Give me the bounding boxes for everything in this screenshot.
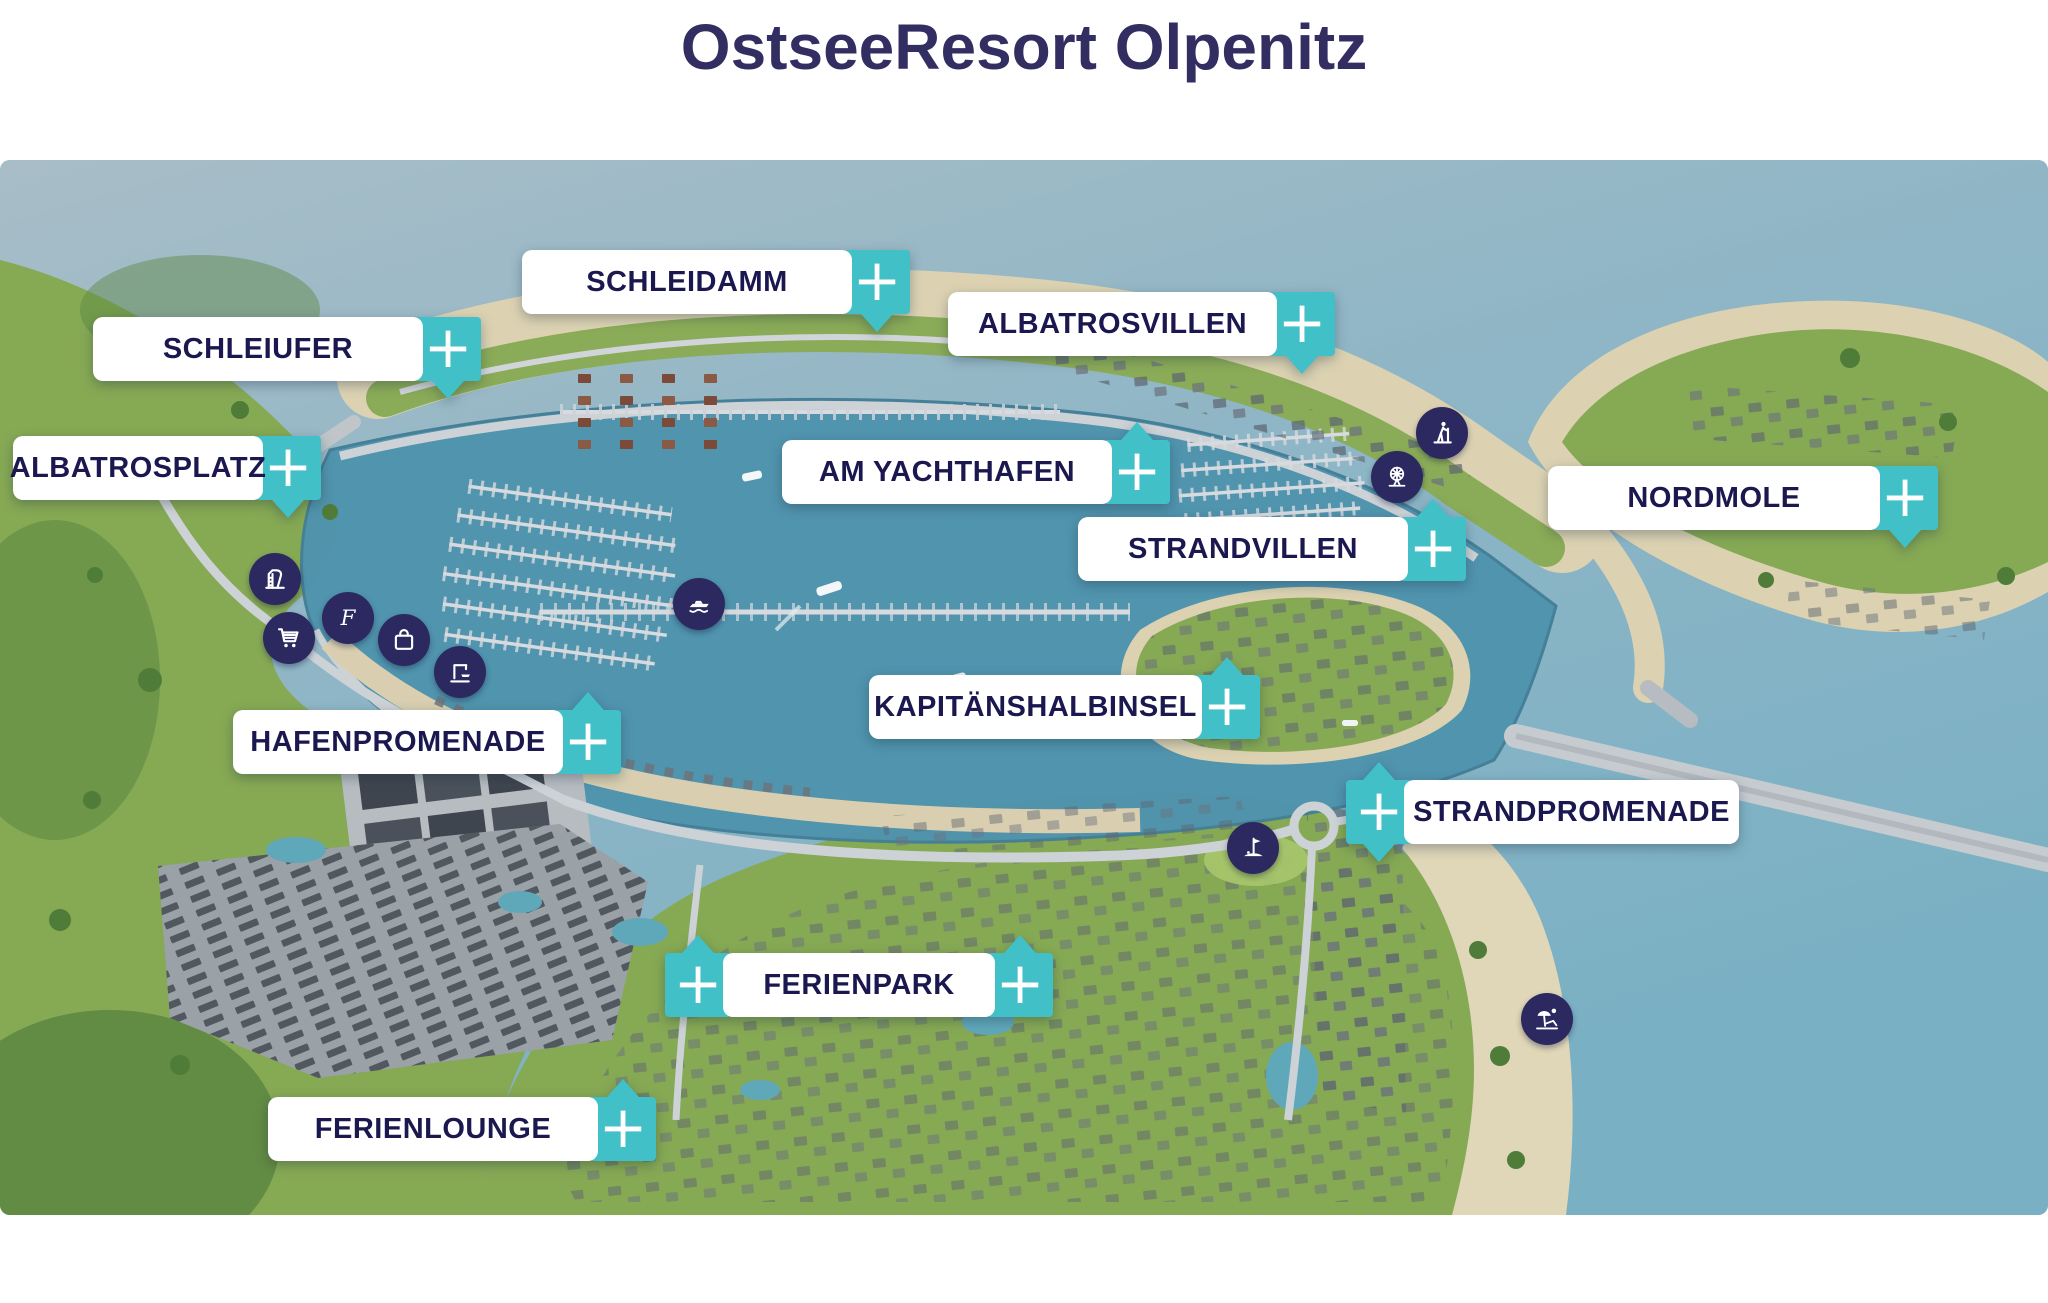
pointer-down-icon	[861, 314, 893, 332]
plus-icon: +	[1104, 440, 1170, 504]
pointer-up-icon	[1211, 657, 1243, 675]
ferienpark-plus-right-button[interactable]: +	[987, 953, 1053, 1017]
label-ferienlounge-text: FERIENLOUNGE	[268, 1097, 598, 1161]
pointer-down-icon	[1363, 844, 1395, 862]
motor-yacht-glyph	[684, 589, 714, 619]
label-strandvillen-text: STRANDVILLEN	[1078, 517, 1408, 581]
shopping-bag-icon[interactable]	[378, 614, 430, 666]
pointer-down-icon	[1889, 530, 1921, 548]
label-schleiufer: SCHLEIUFER +	[93, 317, 481, 381]
beach-icon[interactable]	[1521, 993, 1573, 1045]
kapitaenshalbinsel-plus-button[interactable]: +	[1194, 675, 1260, 739]
plus-icon: +	[555, 710, 621, 774]
label-albatrosplatz: ALBATROSPLATZ +	[13, 436, 321, 500]
water-slide-glyph	[260, 564, 290, 594]
water-slide-icon[interactable]	[249, 553, 301, 605]
shopping-cart-glyph	[274, 623, 304, 653]
amusement-park-icon[interactable]	[1371, 451, 1423, 503]
ferienpark-plus-left-button[interactable]: +	[665, 953, 731, 1017]
am-yachthafen-plus-button[interactable]: +	[1104, 440, 1170, 504]
plus-icon: +	[1400, 517, 1466, 581]
pointer-up-icon	[572, 692, 604, 710]
pointer-up-icon	[682, 935, 714, 953]
plus-icon: +	[1872, 466, 1938, 530]
label-albatrosvillen-text: ALBATROSVILLEN	[948, 292, 1277, 356]
pointer-up-icon	[1417, 499, 1449, 517]
label-nordmole-text: NORDMOLE	[1548, 466, 1880, 530]
boat-crane-glyph	[445, 657, 475, 687]
plus-icon: +	[590, 1097, 656, 1161]
label-ferienpark: + FERIENPARK +	[665, 953, 1053, 1017]
shopping-cart-icon[interactable]	[263, 612, 315, 664]
label-nordmole: NORDMOLE +	[1548, 466, 1938, 530]
motor-yacht-icon[interactable]	[673, 578, 725, 630]
label-am-yachthafen: AM YACHTHAFEN +	[782, 440, 1170, 504]
label-kapitaenshalbinsel-text: KAPITÄNSHALBINSEL	[869, 675, 1202, 739]
amusement-park-glyph	[1382, 462, 1412, 492]
plus-icon: +	[1194, 675, 1260, 739]
schleiufer-plus-button[interactable]: +	[415, 317, 481, 381]
pointer-down-icon	[272, 500, 304, 518]
schleidamm-plus-button[interactable]: +	[844, 250, 910, 314]
plus-icon: +	[987, 953, 1053, 1017]
beach-glyph	[1532, 1004, 1562, 1034]
plus-icon: +	[1346, 780, 1412, 844]
plus-icon: +	[665, 953, 731, 1017]
label-schleiufer-text: SCHLEIUFER	[93, 317, 423, 381]
strandpromenade-plus-button[interactable]: +	[1346, 780, 1412, 844]
letter-f-glyph: F	[333, 603, 363, 633]
pointer-up-icon	[607, 1079, 639, 1097]
svg-text:F: F	[340, 606, 357, 631]
parking-area	[158, 824, 648, 1078]
label-strandpromenade-text: STRANDPROMENADE	[1404, 780, 1739, 844]
hafenpromenade-plus-button[interactable]: +	[555, 710, 621, 774]
label-hafenpromenade-text: HAFENPROMENADE	[233, 710, 563, 774]
hiking-icon[interactable]	[1416, 407, 1468, 459]
pointer-down-icon	[432, 381, 464, 399]
label-ferienlounge: FERIENLOUNGE +	[268, 1097, 656, 1161]
resort-map: F	[0, 160, 2048, 1215]
label-schleidamm-text: SCHLEIDAMM	[522, 250, 852, 314]
pointer-down-icon	[1286, 356, 1318, 374]
ferienlounge-plus-button[interactable]: +	[590, 1097, 656, 1161]
pointer-up-icon	[1004, 935, 1036, 953]
plus-icon: +	[415, 317, 481, 381]
label-hafenpromenade: HAFENPROMENADE +	[233, 710, 621, 774]
label-albatrosvillen: ALBATROSVILLEN +	[948, 292, 1335, 356]
plus-icon: +	[844, 250, 910, 314]
albatrosvillen-plus-button[interactable]: +	[1269, 292, 1335, 356]
minigolf-glyph	[1238, 833, 1268, 863]
shopping-bag-glyph	[389, 625, 419, 655]
label-albatrosplatz-text: ALBATROSPLATZ	[13, 436, 263, 500]
boat-crane-icon[interactable]	[434, 646, 486, 698]
nordmole-plus-button[interactable]: +	[1872, 466, 1938, 530]
label-strandpromenade: + STRANDPROMENADE	[1346, 780, 1739, 844]
pointer-up-icon	[1121, 422, 1153, 440]
minigolf-icon[interactable]	[1227, 822, 1279, 874]
strandvillen-plus-button[interactable]: +	[1400, 517, 1466, 581]
page-title: OstseeResort Olpenitz	[0, 10, 2048, 84]
label-strandvillen: STRANDVILLEN +	[1078, 517, 1466, 581]
label-kapitaenshalbinsel: KAPITÄNSHALBINSEL +	[869, 675, 1260, 739]
page: OstseeResort Olpenitz	[0, 0, 2048, 1303]
label-am-yachthafen-text: AM YACHTHAFEN	[782, 440, 1112, 504]
letter-f-icon[interactable]: F	[322, 592, 374, 644]
plus-icon: +	[1269, 292, 1335, 356]
pointer-up-icon	[1363, 762, 1395, 780]
hiking-glyph	[1427, 418, 1457, 448]
label-schleidamm: SCHLEIDAMM +	[522, 250, 910, 314]
label-ferienpark-text: FERIENPARK	[723, 953, 995, 1017]
